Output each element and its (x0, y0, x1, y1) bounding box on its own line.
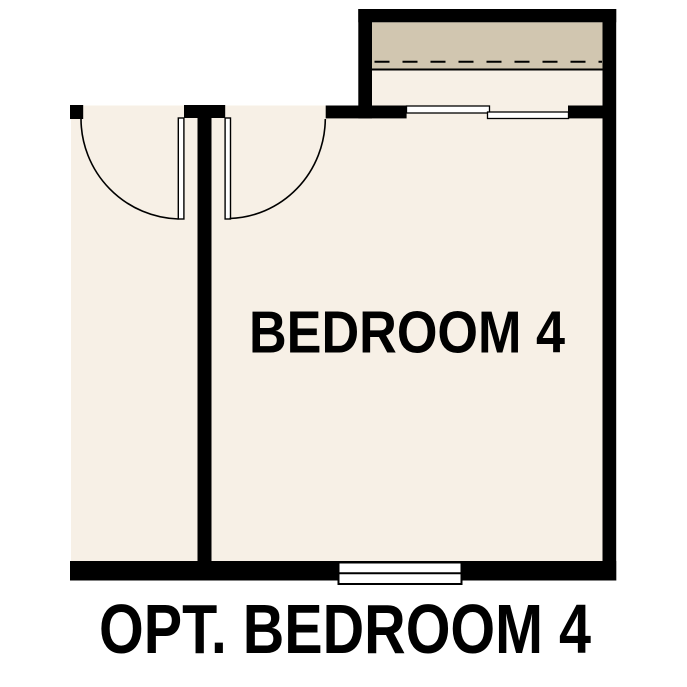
svg-text:OPT. BEDROOM 4: OPT. BEDROOM 4 (99, 590, 591, 668)
svg-text:BEDROOM 4: BEDROOM 4 (249, 300, 565, 366)
